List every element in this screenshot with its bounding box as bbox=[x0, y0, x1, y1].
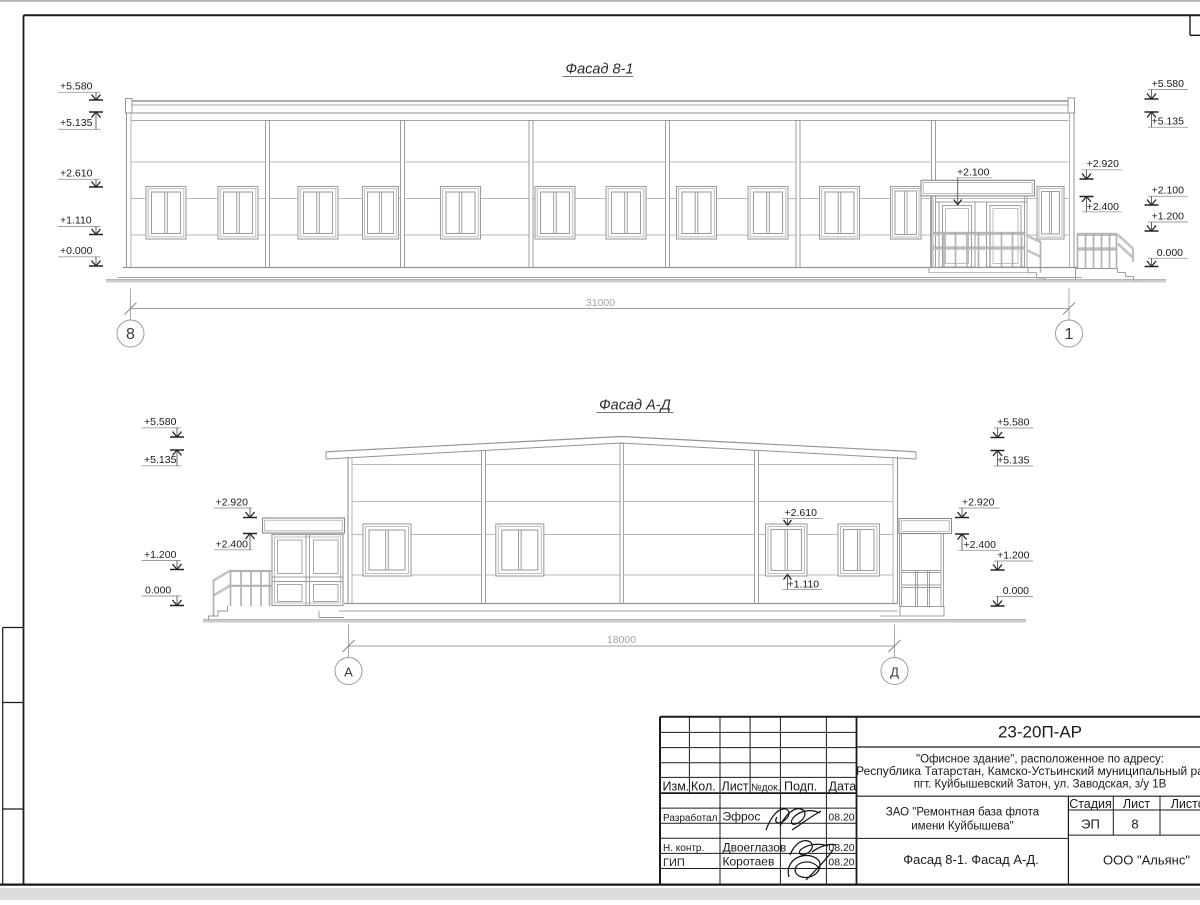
svg-text:ООО "Альянс": ООО "Альянс" bbox=[1103, 853, 1190, 868]
svg-text:Стадия: Стадия bbox=[1069, 797, 1112, 811]
svg-text:+1.200: +1.200 bbox=[1152, 211, 1185, 223]
svg-text:Двоеглазов: Двоеглазов bbox=[723, 841, 787, 855]
svg-text:А: А bbox=[344, 665, 353, 680]
svg-text:Фасад 8-1: Фасад 8-1 bbox=[566, 62, 634, 78]
svg-text:31000: 31000 bbox=[586, 297, 615, 309]
svg-text:08.20: 08.20 bbox=[828, 857, 854, 869]
svg-text:+5.580: +5.580 bbox=[60, 81, 93, 93]
svg-text:+1.110: +1.110 bbox=[788, 578, 820, 590]
svg-text:Лист: Лист bbox=[1123, 797, 1150, 811]
svg-text:+5.135: +5.135 bbox=[60, 117, 93, 129]
svg-text:+2.610: +2.610 bbox=[785, 507, 818, 519]
svg-text:Фасад А-Д: Фасад А-Д bbox=[599, 398, 671, 414]
svg-text:1: 1 bbox=[1065, 326, 1074, 343]
svg-text:Фасад 8-1. Фасад А-Д.: Фасад 8-1. Фасад А-Д. bbox=[903, 852, 1039, 867]
svg-text:+2.400: +2.400 bbox=[964, 539, 997, 551]
svg-text:имени Куйбышева": имени Куйбышева" bbox=[911, 821, 1014, 833]
svg-text:пгт. Куйбышевский Затон, ул. З: пгт. Куйбышевский Затон, ул. Заводская, … bbox=[914, 779, 1167, 791]
svg-text:0.000: 0.000 bbox=[145, 585, 171, 597]
svg-text:08.20: 08.20 bbox=[828, 812, 854, 824]
svg-text:+2.100: +2.100 bbox=[1152, 185, 1185, 197]
svg-text:+1.110: +1.110 bbox=[60, 215, 92, 227]
svg-text:ЭП: ЭП bbox=[1081, 817, 1100, 832]
svg-text:+5.580: +5.580 bbox=[1152, 78, 1185, 90]
svg-text:Дата: Дата bbox=[829, 779, 857, 793]
svg-text:+2.400: +2.400 bbox=[1087, 201, 1120, 213]
svg-text:+0.000: +0.000 bbox=[60, 245, 93, 257]
svg-text:Д: Д bbox=[890, 665, 899, 680]
svg-text:Изм.: Изм. bbox=[663, 779, 690, 793]
svg-text:+2.400: +2.400 bbox=[216, 539, 249, 551]
svg-text:+5.135: +5.135 bbox=[997, 455, 1030, 467]
svg-text:+2.610: +2.610 bbox=[60, 168, 93, 180]
svg-text:8: 8 bbox=[1131, 817, 1138, 832]
svg-text:8: 8 bbox=[126, 326, 135, 343]
svg-text:Разработал: Разработал bbox=[663, 812, 718, 824]
svg-text:Лист: Лист bbox=[722, 779, 749, 793]
svg-text:ГИП: ГИП bbox=[663, 857, 685, 869]
svg-text:+2.920: +2.920 bbox=[216, 497, 249, 509]
svg-text:+5.135: +5.135 bbox=[144, 454, 177, 466]
svg-text:+5.580: +5.580 bbox=[997, 417, 1030, 429]
svg-text:№док.: №док. bbox=[751, 782, 780, 793]
svg-text:Н. контр.: Н. контр. bbox=[663, 843, 704, 854]
svg-text:+5.135: +5.135 bbox=[1152, 116, 1185, 128]
svg-text:Республика Татарстан, Камско-У: Республика Татарстан, Камско-Устьинский … bbox=[856, 764, 1200, 778]
svg-text:+1.200: +1.200 bbox=[144, 549, 177, 561]
svg-text:0.000: 0.000 bbox=[1157, 247, 1183, 259]
svg-text:Листов: Листов bbox=[1171, 797, 1200, 811]
svg-text:+2.920: +2.920 bbox=[1087, 158, 1120, 170]
svg-text:Эфрос: Эфрос bbox=[723, 810, 761, 824]
svg-text:+2.920: +2.920 bbox=[962, 497, 995, 509]
svg-text:+2.100: +2.100 bbox=[957, 167, 990, 179]
svg-text:ЗАО "Ремонтная база флота: ЗАО "Ремонтная база флота bbox=[886, 807, 1040, 819]
svg-text:23-20П-АР: 23-20П-АР bbox=[998, 723, 1082, 742]
svg-text:+5.580: +5.580 bbox=[144, 416, 177, 428]
svg-text:18000: 18000 bbox=[607, 634, 636, 646]
svg-text:0.000: 0.000 bbox=[1003, 585, 1029, 597]
svg-text:+1.200: +1.200 bbox=[997, 550, 1030, 562]
svg-text:Коротаев: Коротаев bbox=[723, 855, 775, 869]
svg-text:Кол.: Кол. bbox=[691, 779, 716, 793]
svg-text:Подп.: Подп. bbox=[784, 779, 817, 793]
